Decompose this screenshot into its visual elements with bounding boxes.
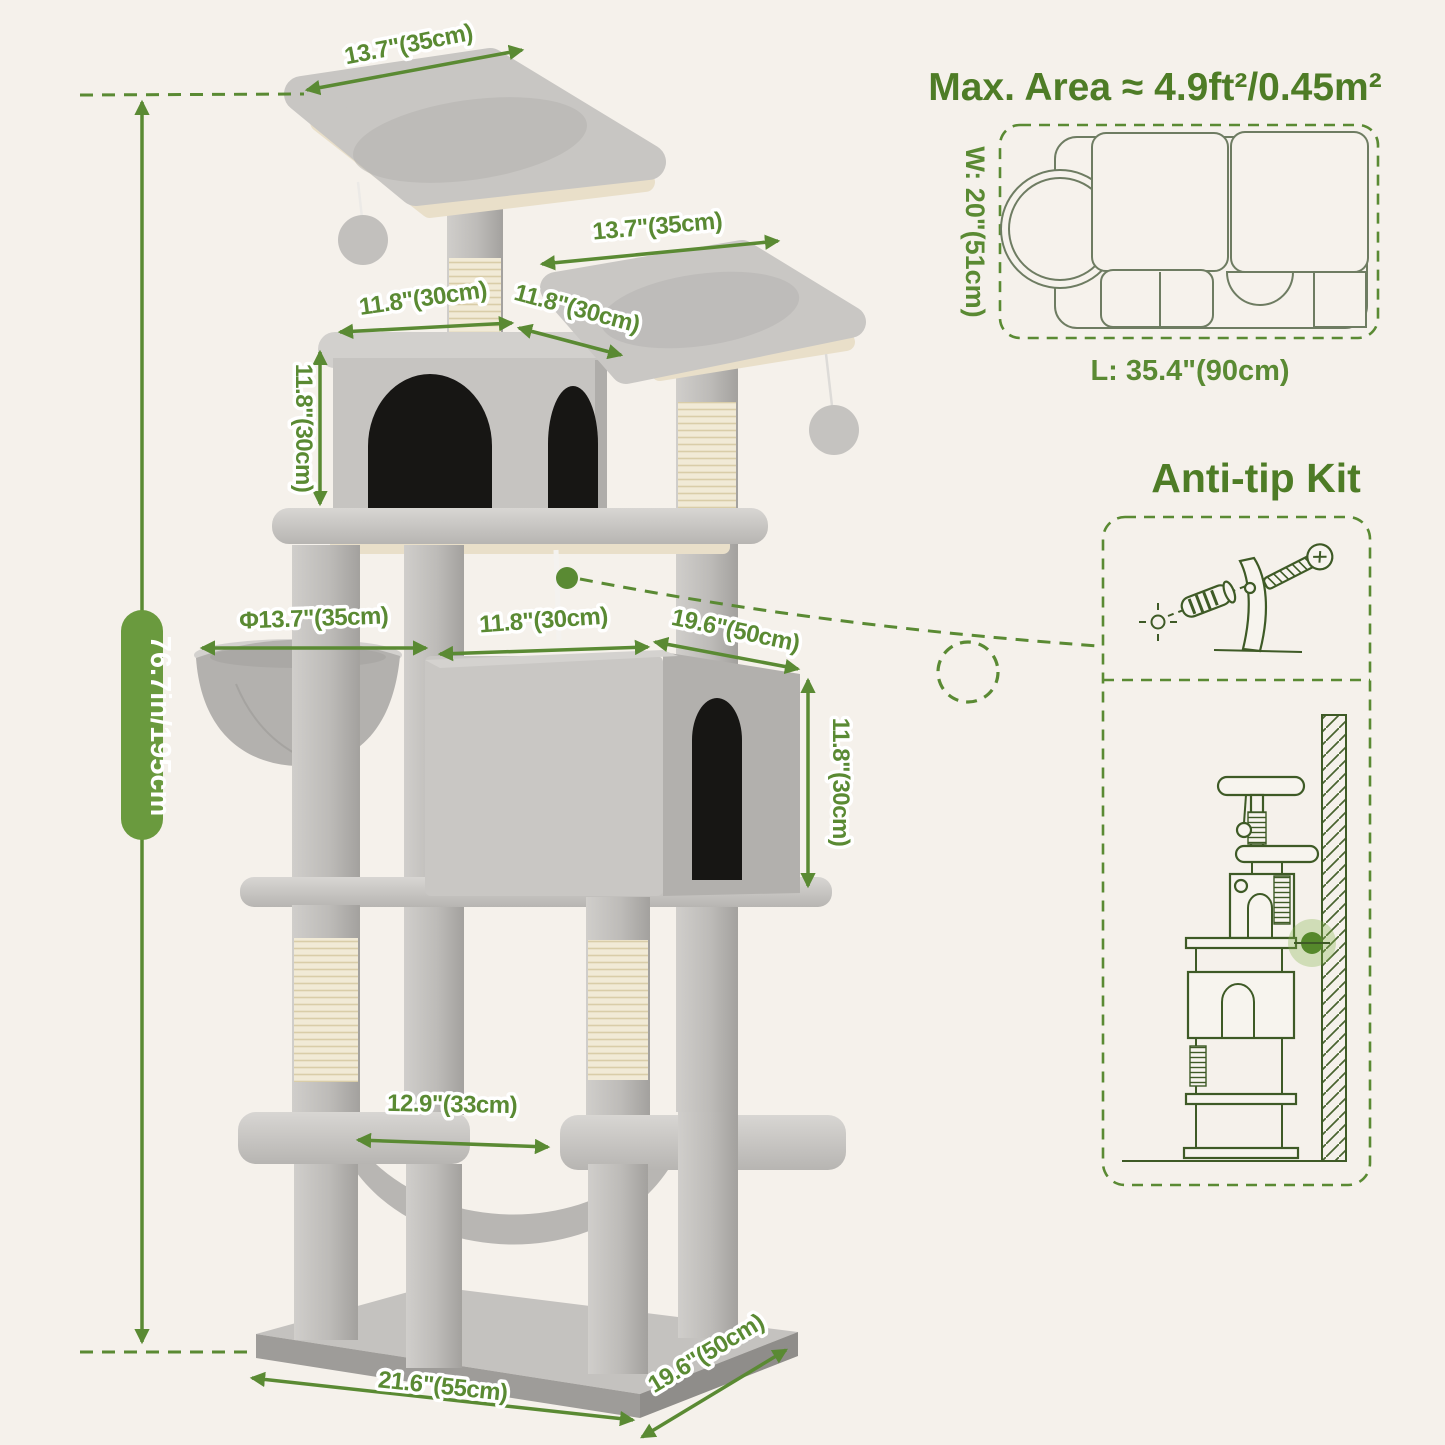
max-area-length-label: L: 35.4"(90cm): [1090, 355, 1289, 387]
max-area-title: Max. Area ≈ 4.9ft²/0.45m²: [928, 66, 1381, 109]
overall-height-label: 76.7in/195cm: [144, 636, 176, 817]
leg-4: [678, 1112, 738, 1338]
lower-platform-left: [238, 1112, 470, 1164]
pompom-string-2: [826, 354, 832, 406]
cat-tree-illustration: [194, 66, 859, 1418]
upper-condo-door: [368, 374, 492, 512]
leg-1: [294, 1164, 358, 1340]
leg-2: [406, 1164, 462, 1368]
pompom-2: [809, 405, 859, 455]
anti-tip-wall-drawing: [1122, 715, 1346, 1161]
anti-tip-panel: Anti-tip Kit: [1103, 455, 1370, 1185]
product-dimension-infographic: 76.7in/195cm 13.7"(35cm) 13.7"(35cm) 11.…: [0, 0, 1445, 1445]
pompom-1: [338, 215, 388, 265]
condo-height-label: 11.8"(30cm): [290, 364, 317, 493]
infographic-canvas: 76.7in/195cm 13.7"(35cm) 13.7"(35cm) 11.…: [0, 0, 1445, 1445]
max-area-panel: Max. Area ≈ 4.9ft²/0.45m² W: 20"(51cm) L…: [928, 66, 1381, 387]
max-area-width-label: W: 20"(51cm): [960, 146, 990, 317]
anti-tip-connector: [580, 579, 1098, 646]
anti-tip-hardware-drawing: [1139, 540, 1337, 652]
hammock-label: 12.9"(33cm): [387, 1090, 517, 1119]
big-condo-height-label: 11.8"(30cm): [827, 718, 854, 847]
top-view-diagram: [1001, 132, 1368, 328]
mid-width-label: 11.8"(30cm): [478, 603, 608, 639]
right-mid-post-sisal: [588, 940, 648, 1080]
dash-guide-top: [80, 94, 304, 95]
upper-condo-side-door: [548, 386, 598, 513]
left-post-sisal: [294, 938, 358, 1082]
anti-tip-title: Anti-tip Kit: [1151, 455, 1361, 501]
big-condo-door: [692, 698, 742, 880]
right-rear-post-sisal: [678, 402, 736, 514]
big-condo-front: [425, 656, 663, 896]
leg-3: [588, 1164, 648, 1374]
second-platform-label: 13.7"(35cm): [591, 207, 723, 245]
left-post-upper: [292, 545, 360, 880]
anchor-point-dot: [556, 567, 578, 589]
basket-diameter-label: Φ13.7"(35cm): [239, 602, 389, 634]
pompom-string-1: [358, 182, 362, 218]
upper-platform: [272, 508, 768, 544]
anti-tip-connector-loop: [938, 642, 998, 702]
